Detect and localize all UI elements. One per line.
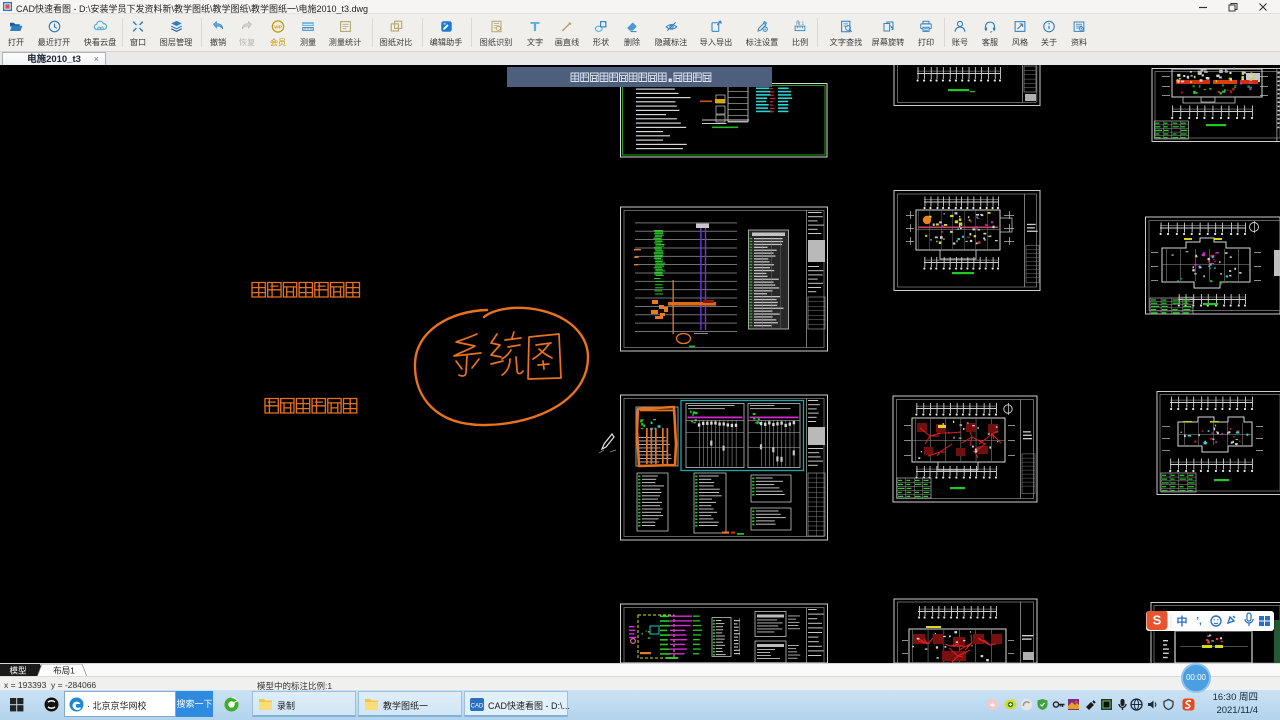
svg-text:布局1: 布局1 [53,666,75,676]
svg-text:CAD: CAD [471,704,484,710]
svg-text:中: 中 [1177,614,1188,628]
svg-text:VIP: VIP [274,24,283,30]
svg-text:S: S [1153,613,1162,628]
svg-text:角:1: 角:1 [796,19,805,26]
svg-text:模型: 模型 [9,666,27,676]
svg-text:’,: ’, [1196,616,1202,627]
